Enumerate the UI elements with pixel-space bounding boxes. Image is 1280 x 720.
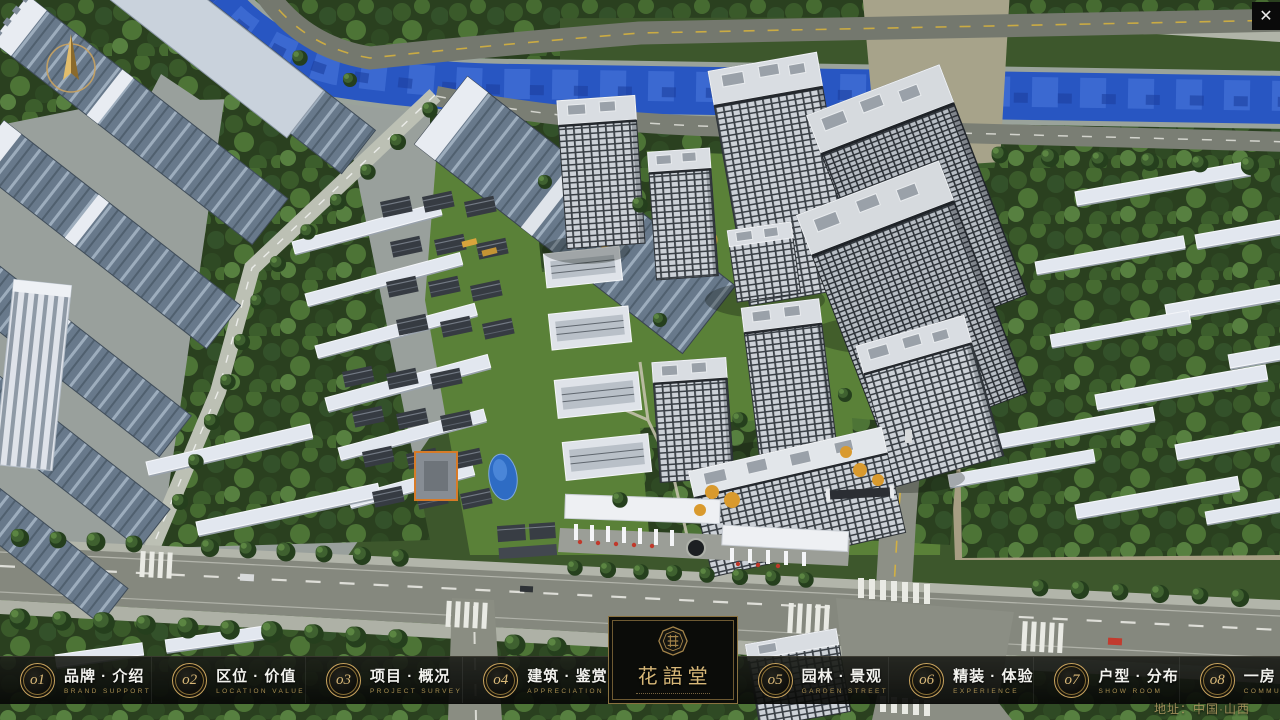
nav-item-brand[interactable]: o1 品牌 · 介绍 BRAND SUPPORT: [0, 657, 152, 703]
nav-badge-1: o1: [20, 663, 55, 698]
nav-item-location[interactable]: o2 区位 · 价值 LOCATION VALUE: [152, 657, 306, 703]
nav-label-zh: 项目 · 概况: [370, 665, 462, 686]
close-button[interactable]: ✕: [1252, 2, 1280, 30]
logo-panel[interactable]: 花語堂: [608, 616, 738, 704]
nav-item-architecture[interactable]: o4 建筑 · 鉴赏 APPRECIATION: [463, 657, 607, 703]
nav-label-en: PROJECT SURVEY: [370, 688, 462, 695]
nav-badge-8: o8: [1200, 663, 1235, 698]
nav-label-en: APPRECIATION: [527, 688, 607, 695]
nav-badge-7: o7: [1054, 663, 1089, 698]
close-icon: ✕: [1259, 6, 1272, 26]
nav-badge-5: o5: [758, 663, 793, 698]
nav-label-en: COMMUNITY: [1244, 688, 1280, 695]
logo-tagline: [636, 693, 710, 694]
nav-label-zh: 区位 · 价值: [216, 665, 305, 686]
seal-emblem-icon: [658, 626, 688, 656]
nav-item-project[interactable]: o3 项目 · 概况 PROJECT SURVEY: [306, 657, 463, 703]
nav-item-interior[interactable]: o6 精装 · 体验 EXPERIENCE: [889, 657, 1034, 703]
nav-label-en: BRAND SUPPORT: [64, 688, 151, 695]
nav-badge-6: o6: [909, 663, 944, 698]
nav-label-en: EXPERIENCE: [953, 688, 1033, 695]
nav-label-zh: 品牌 · 介绍: [64, 665, 151, 686]
nav-label-zh: 一房 · 一景: [1244, 665, 1280, 686]
navbar-strip-left: o1 品牌 · 介绍 BRAND SUPPORT o2 区位 · 价值 LOCA…: [0, 656, 608, 704]
navbar-strip-right: o5 园林 · 景观 GARDEN STREET o6 精装 · 体验 EXPE…: [738, 656, 1280, 704]
nav-label-zh: 园林 · 景观: [802, 665, 888, 686]
nav-label-en: GARDEN STREET: [802, 688, 888, 695]
masterplan-render: [0, 0, 1280, 720]
project-logo-title: 花語堂: [633, 660, 713, 689]
bottom-navbar: o1 品牌 · 介绍 BRAND SUPPORT o2 区位 · 价值 LOCA…: [0, 656, 1280, 702]
nav-item-views[interactable]: o8 一房 · 一景 COMMUNITY: [1180, 657, 1280, 703]
nav-label-zh: 精装 · 体验: [953, 665, 1033, 686]
nav-badge-2: o2: [172, 663, 207, 698]
nav-label-zh: 户型 · 分布: [1098, 665, 1178, 686]
nav-label-en: SHOW ROOM: [1098, 688, 1178, 695]
nav-item-garden[interactable]: o5 园林 · 景观 GARDEN STREET: [738, 657, 889, 703]
nav-label-zh: 建筑 · 鉴赏: [527, 665, 607, 686]
nav-badge-3: o3: [326, 663, 361, 698]
project-address: 地址：中国·山西: [1154, 700, 1250, 717]
sales-presentation-screen: ✕ o1 品牌 · 介绍 BRAND SUPPORT o2 区位 · 价值 LO…: [0, 0, 1280, 720]
nav-label-en: LOCATION VALUE: [216, 688, 305, 695]
nav-badge-4: o4: [483, 663, 518, 698]
nav-item-floorplans[interactable]: o7 户型 · 分布 SHOW ROOM: [1034, 657, 1179, 703]
